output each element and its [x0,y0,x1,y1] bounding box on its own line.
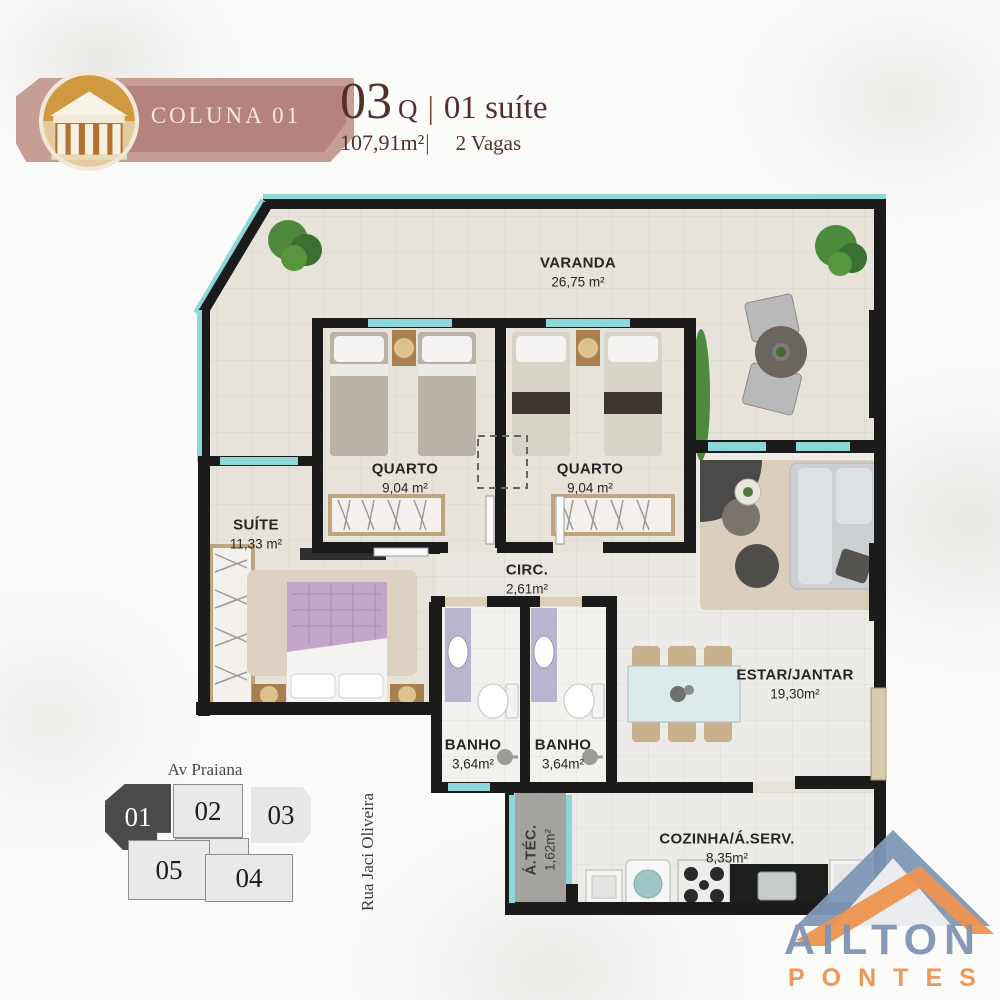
unit-title: 03 Q | 01 suíte 107,91m² | 2 Vagas [340,76,547,156]
watermark-surname: PONTES [788,964,993,993]
title-divider: | [428,89,434,126]
area-divider: | [425,130,429,156]
room-label-estar-jantar: ESTAR/JANTAR 19,30m² [736,665,853,702]
room-label-suite: SUÍTE 11,33 m² [230,515,282,552]
title-line-1: 03 Q | 01 suíte [340,76,547,128]
temple-logo-icon [38,70,140,172]
total-area: 107,91m² [340,130,424,156]
key-plan-unit-03: 03 [251,787,311,843]
key-plan-unit-04: 04 [205,854,293,902]
banner-label: COLUNA 01 [151,103,301,129]
key-plan: Av Praiana Rua Jaci Oliveira 01 02 03 05… [85,752,335,922]
realtor-watermark: AILTON PONTES [772,818,1000,1000]
key-plan-unit-02: 02 [173,784,243,838]
room-label-quarto-2: QUARTO 9,04 m² [557,459,624,496]
parking-count: 2 Vagas [456,131,522,156]
watermark-name: AILTON [784,916,982,965]
bedroom-suffix: Q [398,94,418,125]
suite-count: 01 suíte [444,90,548,127]
room-label-varanda: VARANDA 26,75 m² [540,253,616,290]
key-plan-unit-05: 05 [128,840,210,900]
street-name-right: Rua Jaci Oliveira [358,793,378,911]
room-label-circ: CIRC. 2,61m² [506,560,548,597]
room-label-banho-2: BANHO 3,64m² [535,735,592,772]
column-banner: COLUNA 01 [106,86,346,152]
room-label-banho-1: BANHO 3,64m² [445,735,502,772]
bedroom-count: 03 [340,76,392,128]
street-name-top: Av Praiana [85,760,325,780]
dining-set [628,646,740,742]
room-label-atec: Á.TÉC. 1,62m² [521,825,558,876]
key-plan-units: 01 02 03 05 04 [105,782,311,912]
room-label-quarto-1: QUARTO 9,04 m² [372,459,439,496]
title-line-2: 107,91m² | 2 Vagas [340,130,547,156]
living-furniture [700,460,878,610]
